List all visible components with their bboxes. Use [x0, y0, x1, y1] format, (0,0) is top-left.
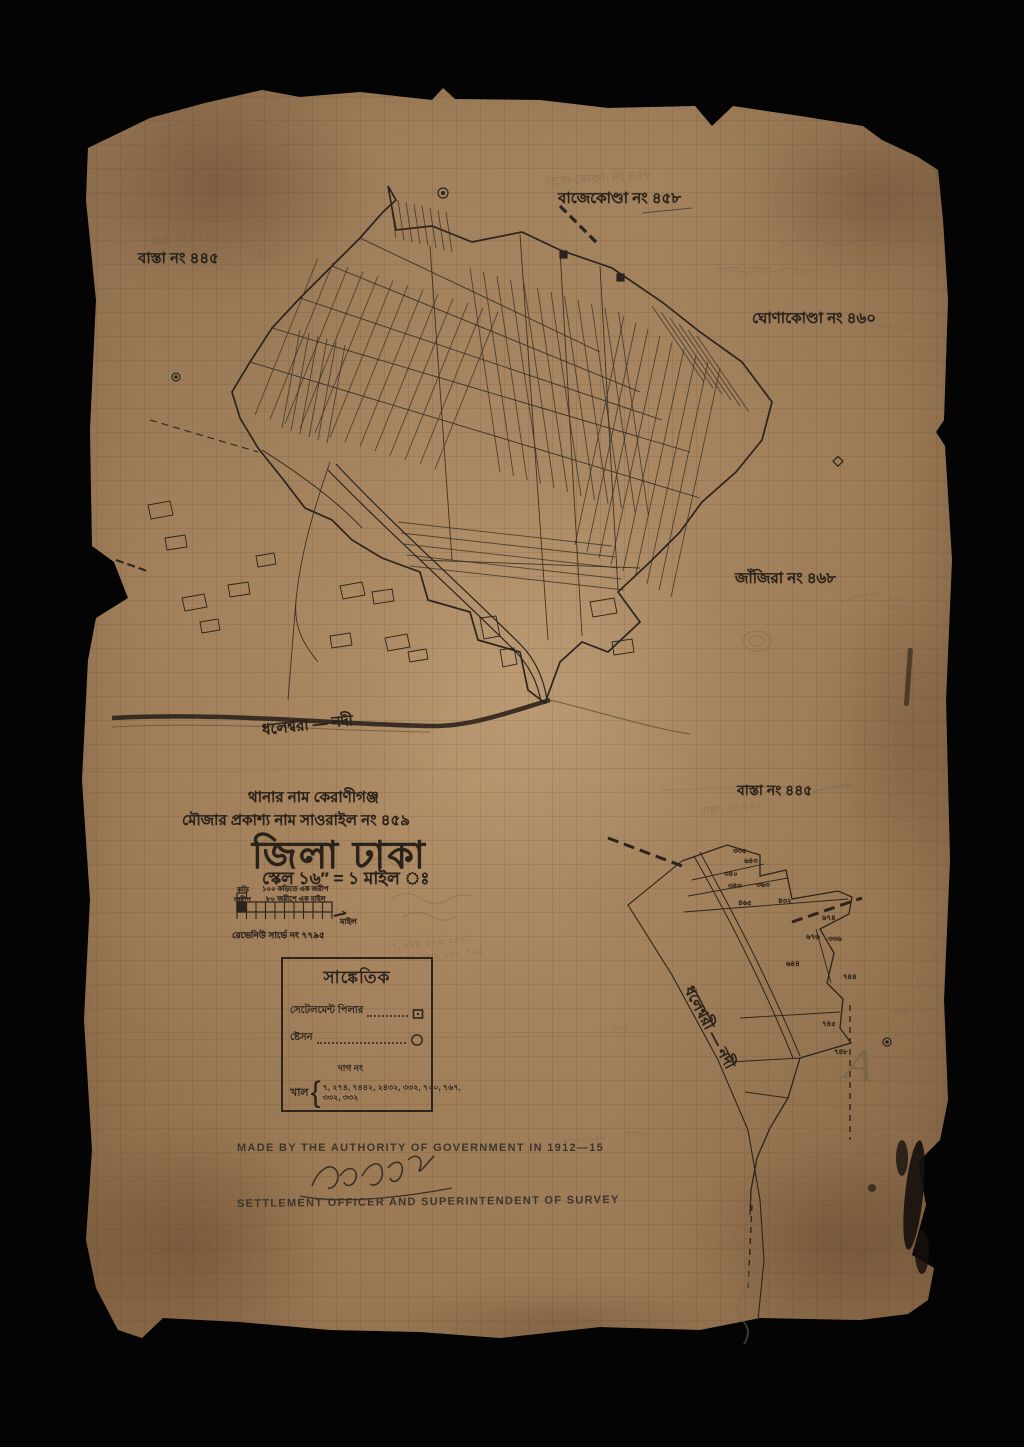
label-basta-left: বাস্তা নং ৪৪৫: [138, 247, 219, 272]
ink-smudges: [868, 648, 929, 1274]
legend-station-label: ষ্টেসন: [290, 1030, 313, 1047]
pencil-n4: ৭০০: [742, 1258, 760, 1273]
parcel-number: ৭৪৮: [834, 1046, 848, 1058]
dotted-leader: [367, 1014, 408, 1017]
title-thana: থানার নাম কেরাণীগঞ্জ: [248, 786, 379, 811]
legend-pillar-label: সেটেলমেন্ট পিলার: [290, 1003, 363, 1020]
parcel-number: ৭৪৫: [822, 1018, 836, 1030]
parcel-number: ৬৪৪: [786, 958, 800, 970]
legend-dag-no: দাগ নং: [338, 1061, 424, 1076]
dotted-leader: [317, 1041, 406, 1044]
legend-row-pillar: সেটেলমেন্ট পিলার: [290, 1003, 424, 1020]
legend-box: সাঙ্কেতিক সেটেলমেন্ট পিলার ষ্টেসন দাগ নং…: [281, 957, 433, 1112]
legend-row-station: ষ্টেসন: [290, 1030, 424, 1047]
parcel-number: ৩৬৩: [756, 879, 770, 891]
roads: [262, 450, 547, 702]
pencil-n2: ৪৩ ৬২: [626, 1128, 649, 1141]
scale-right-word: মাইল: [340, 916, 357, 929]
parcel-number: ৪৩২: [778, 895, 792, 907]
label-janjira: জাঁজিরা নং ৪৬৮: [735, 567, 836, 592]
parcel-number: ৬৭৬: [806, 931, 820, 943]
pencil-n5: ৬৫৮: [893, 1006, 909, 1019]
pencil-n3: ৩২৮: [695, 1228, 713, 1243]
parcel-number: ৭৪৪: [843, 971, 857, 983]
revenue-survey-no: রেভেনিউ সার্ভে নং ৭৭৯৫: [232, 928, 325, 943]
made-by-line: MADE BY THE AUTHORITY OF GOVERNMENT IN 1…: [237, 1142, 604, 1154]
scale-note-left2: জরীপ: [234, 894, 251, 906]
map-drawing: [0, 0, 1024, 1447]
parcel-number: ৬৭৪: [822, 912, 836, 924]
label-bajekonda: বাজেকোণ্ডা নং ৪৫৮: [558, 187, 681, 212]
legend-khal-label: খাল: [290, 1084, 309, 1103]
parcel-number: ৩৪৩: [728, 880, 742, 892]
parcel-number: ৩৪০: [724, 868, 738, 880]
river-line-main: [112, 700, 690, 734]
pencil-label-ghonakonda: ঘোনা-কোণ্ডা- নং ৪৬০: [716, 262, 814, 281]
inset-map: [608, 838, 862, 1320]
station-icon: [410, 1033, 424, 1047]
khal-numbers-line1: ৭, ২৭৪, ৭৪৪২, ২৪৩২, ৩৩২, ৭০০, ৭৬৭,: [323, 1083, 461, 1093]
parcel-number: ৪৬৫: [738, 897, 752, 909]
brace-glyph: {: [311, 1080, 321, 1106]
legend-heading: সাঙ্কেতিক: [290, 965, 424, 993]
scanned-map-page: বাজে-কোণ্ডা- নং ৪৫৮ বাজেকোণ্ডা নং ৪৫৮ বা…: [0, 0, 1024, 1447]
legend-khal-row: খাল { ৭, ২৭৪, ৭৪৪২, ২৪৩২, ৩৩২, ৭০০, ৭৬৭,…: [290, 1080, 424, 1106]
signature: [300, 1156, 452, 1200]
label-ghonakonda: ঘোণাকোণ্ডা নং ৪৬০: [752, 307, 876, 332]
settlement-pillar-icon: [412, 1008, 424, 1020]
parcel-number: ৬৪৩: [744, 855, 758, 867]
scale-note2: ৮০ জরীপে এক মাইল: [266, 893, 326, 905]
pencil-stack3: ৬৩২: [890, 610, 904, 622]
khal-numbers-line2: ৩৩২, ৩৩২: [323, 1093, 461, 1103]
pencil-n6: ২০৩: [613, 1022, 629, 1035]
parcel-number: ৩৩৬: [828, 933, 842, 945]
